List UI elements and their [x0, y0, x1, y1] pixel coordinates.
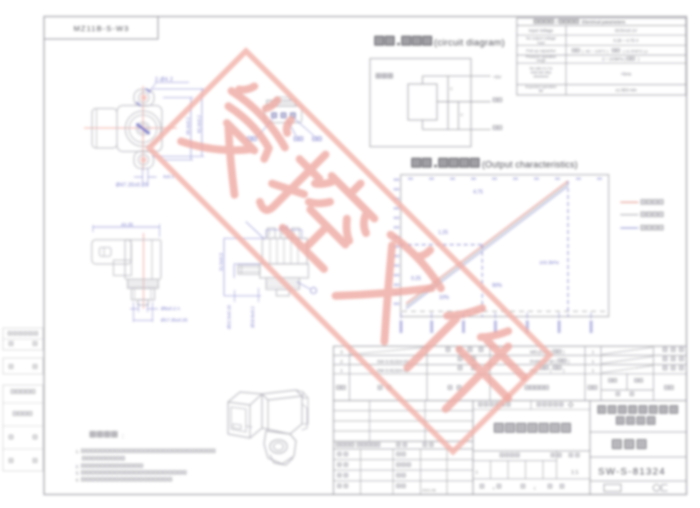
- svg-text:10%: 10%: [439, 295, 450, 301]
- svg-text:<5ms: <5ms: [621, 72, 631, 77]
- svg-text:90%: 90%: [492, 283, 503, 289]
- svg-text:2 ~ 103kPa (: 2 ~ 103kPa (: [602, 57, 626, 62]
- svg-text:Electrical parameters: Electrical parameters: [582, 20, 626, 25]
- svg-text:Ø22.5±0.15: Ø22.5±0.15: [227, 305, 232, 329]
- svg-text:Ø17.35±0.25: Ø17.35±0.25: [161, 317, 188, 322]
- svg-text:+5V: +5V: [493, 74, 502, 79]
- svg-text:(circuit diagram): (circuit diagram): [434, 38, 505, 48]
- svg-text:2-Ø4.2: 2-Ø4.2: [155, 77, 173, 83]
- svg-text:4.75: 4.75: [473, 189, 483, 195]
- svg-text:31.5±0.3: 31.5±0.3: [219, 253, 224, 271]
- svg-text:( ±1.5%FS ) p: ( ±1.5%FS ) p: [623, 48, 648, 53]
- svg-text:Input Voltage: Input Voltage: [529, 28, 554, 33]
- svg-text:Ø19.6±0.2: Ø19.6±0.2: [250, 306, 255, 328]
- svg-text:life: life: [539, 89, 544, 93]
- svg-text:SW-S-81324: SW-S-81324: [598, 467, 666, 478]
- svg-text:44.35: 44.35: [121, 222, 133, 228]
- svg-text:62.4±0.2: 62.4±0.2: [196, 115, 201, 133]
- svg-text:1.25: 1.25: [438, 230, 448, 236]
- svg-text:Ø47.35±0.25: Ø47.35±0.25: [116, 182, 148, 188]
- svg-text:DC5V±0.1V: DC5V±0.1V: [615, 28, 637, 33]
- svg-text:3.: 3.: [76, 471, 80, 476]
- svg-text:4.: 4.: [76, 478, 80, 483]
- svg-text:SW-S-81324-02: SW-S-81324-02: [377, 359, 409, 364]
- svg-text:Ø8±0.2 A: Ø8±0.2 A: [161, 306, 181, 311]
- svg-text:C: C: [450, 87, 453, 91]
- svg-text:load: load: [537, 41, 544, 45]
- svg-text:(Output characteristics): (Output characteristics): [482, 160, 578, 170]
- svg-text:1:1: 1:1: [571, 470, 579, 476]
- svg-text:2.: 2.: [76, 464, 80, 469]
- svg-text:103.3kPa: 103.3kPa: [539, 260, 559, 265]
- svg-text:MZ11B-S-W3: MZ11B-S-W3: [74, 24, 130, 33]
- svg-text:2021.06: 2021.06: [422, 489, 436, 493]
- svg-text:( -40 ~ 125°C ): ( -40 ~ 125°C ): [582, 48, 609, 53]
- svg-text:0.25: 0.25: [411, 276, 421, 282]
- svg-text:Pull-up capacitor: Pull-up capacitor: [526, 48, 556, 53]
- svg-text:±1.5E6 min: ±1.5E6 min: [615, 88, 637, 93]
- svg-text:35.4±0.2: 35.4±0.2: [185, 117, 190, 135]
- svg-text:1: 1: [476, 470, 479, 475]
- svg-text:.: .: [123, 457, 124, 462]
- svg-text:1.: 1.: [76, 449, 80, 454]
- svg-text:clearance: clearance: [533, 75, 548, 79]
- svg-text:range: range: [536, 59, 545, 63]
- svg-text:C: C: [460, 113, 463, 117]
- svg-text:0.25 ~ 4.75 V: 0.25 ~ 4.75 V: [613, 38, 638, 43]
